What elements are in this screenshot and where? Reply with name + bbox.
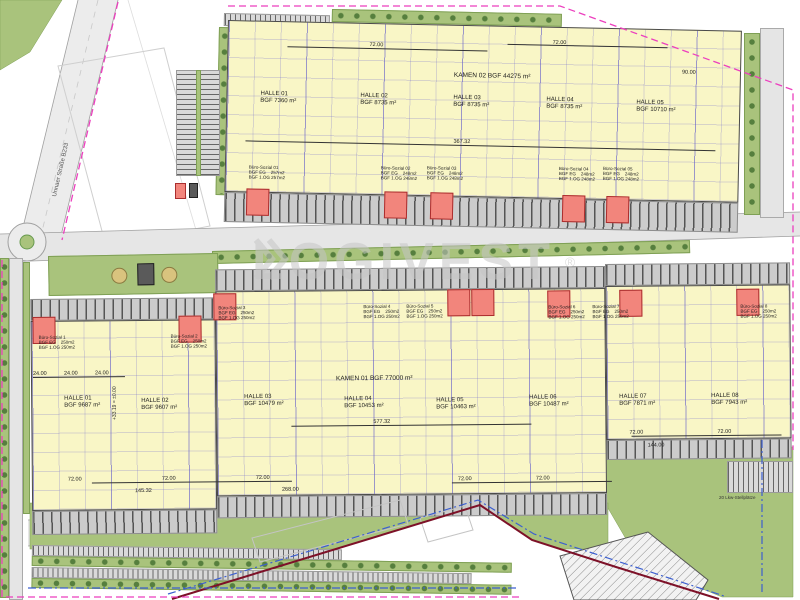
kamen01-hall-label-8: HALLE 08BGF 7943 m² — [711, 393, 747, 407]
utility-building — [189, 183, 198, 198]
kamen02-dimension-1: 72.00 — [369, 42, 383, 48]
kamen01-hall-label-5: HALLE 05BGF 10463 m² — [436, 397, 475, 411]
west-road — [9, 258, 23, 600]
kamen01-hall-label-2: HALLE 02BGF 9607 m² — [141, 398, 177, 412]
annotation-1: Unnaer Straße B233 — [52, 142, 70, 197]
kamen01-office-label-2: Büro-Sozial 2BGF EG 250m2BGF 1.OG 250m2 — [171, 333, 207, 348]
kamen01-office-label-7: Büro-Sozial 7BGF EG 250m2BGF 1.OG 250m2 — [592, 304, 628, 319]
kamen01-dimension-13: 72.00 — [717, 429, 731, 435]
east-road — [760, 28, 784, 218]
kamen01-dimension-7: 72.00 — [256, 475, 270, 481]
site-plan: KAMEN 02 BGF 44275 m²HALLE 01BGF 7360 m²… — [0, 0, 800, 600]
kamen01-dimension-5: 72.00 — [68, 477, 82, 483]
road-b233 — [18, 0, 118, 248]
kamen01-dimension-4: 577.32 — [373, 419, 390, 425]
kamen01-office-box-5 — [471, 289, 494, 316]
annotation-2: 20 Lkw-Stellplätze — [719, 495, 756, 500]
kamen02-hall-label-3: HALLE 03BGF 8735 m² — [453, 95, 489, 110]
kamen01-hall-label-6: HALLE 06BGF 10487 m² — [529, 394, 568, 408]
kamen02-office-box-5 — [606, 196, 630, 223]
kamen01-hall-label-4: HALLE 04BGF 10453 m² — [344, 396, 383, 410]
kamen02-hall-label-2: HALLE 02BGF 8735 m² — [360, 93, 396, 108]
kamen01-hall-label-1: HALLE 01BGF 9687 m² — [64, 395, 100, 409]
green-corner — [0, 0, 62, 70]
kamen02-office-label-5: Büro-Sozial 05BGF EG 248m2BGF 1.OG 248m2 — [603, 166, 640, 182]
tree-col-east — [744, 33, 760, 215]
kamen01-title: KAMEN 01 BGF 77000 m² — [336, 375, 413, 383]
kamen01-dimension-6: 72.00 — [162, 476, 176, 482]
kamen02-hall-label-1: HALLE 01BGF 7360 m² — [260, 91, 296, 106]
kamen01-dimension-11: 72.00 — [536, 475, 550, 481]
kamen01-office-label-5: Büro-Sozial 5BGF EG 250m2BGF 1.OG 250m2 — [406, 303, 442, 318]
kamen01-building: KAMEN 01 BGF 77000 m²HALLE 01BGF 9687 m²… — [30, 258, 793, 555]
parking-west-median — [196, 70, 201, 176]
kamen01-office-label-3: Büro-Sozial 3BGF EG 250m2BGF 1.OG 250m2 — [218, 305, 254, 320]
parcel-boundary — [62, 2, 118, 240]
annotation-3: +33.19 = ±0.00 — [112, 386, 118, 420]
kamen01-dimension-10: 72.00 — [458, 476, 472, 482]
kamen01-dimension-1: 24.00 — [33, 371, 47, 377]
tree-col-far-west — [0, 258, 9, 598]
kamen01-dimension-12: 72.00 — [629, 430, 643, 436]
kamen01-hall-label-3: HALLE 03BGF 10479 m² — [244, 394, 283, 408]
road-centerline — [38, 0, 98, 248]
kamen02-office-box-4 — [562, 195, 586, 222]
kamen02-office-box-3 — [430, 192, 454, 219]
kamen01-dimension-3: 24.00 — [95, 370, 109, 376]
roundabout-island — [20, 235, 34, 249]
kamen01-dimension-14: 144.00 — [648, 442, 665, 448]
roundabout — [8, 223, 46, 261]
kamen01-office-label-8: Büro-Sozial 8BGF EG 250m2BGF 1.OG 250m2 — [740, 303, 776, 318]
kamen02-dimension-2: 72.00 — [553, 40, 567, 46]
kamen01-office-label-1: Büro-Sozial 1BGF EG 250m2BGF 1.OG 250m2 — [39, 335, 75, 350]
green-col-west — [23, 262, 30, 514]
kamen01-hall-label-7: HALLE 07BGF 7871 m² — [619, 394, 655, 408]
kamen02-office-box-1 — [246, 188, 270, 215]
kamen01-office-label-6: Büro-Sozial 6BGF EG 250m2BGF 1.OG 250m2 — [548, 304, 584, 319]
kamen01-dimension-8: 145.32 — [135, 488, 152, 494]
kamen02-hall-label-5: HALLE 05BGF 10710 m² — [636, 100, 676, 115]
kamen01-dimension-2: 24.00 — [64, 371, 78, 377]
kamen01-office-box-4 — [447, 289, 470, 316]
kamen01-dock-apron — [217, 493, 607, 518]
kamen01-dock-apron — [605, 262, 790, 286]
kamen02-office-label-4: Büro-Sozial 04BGF EG 248m2BGF 1.OG 248m2 — [559, 166, 596, 182]
kamen02-office-label-2: Büro-Sozial 02BGF EG 248m2BGF 1.OG 248m2 — [381, 165, 418, 181]
kamen01-dimension-9: 268.00 — [282, 487, 299, 493]
sprinkler-building — [175, 183, 186, 199]
kamen02-hall-label-4: HALLE 04BGF 8735 m² — [546, 97, 582, 112]
kamen02-dimension-3: 90.00 — [682, 70, 696, 76]
kamen02-office-box-2 — [384, 191, 408, 218]
kamen02-office-label-3: Büro-Sozial 03BGF EG 248m2BGF 1.OG 248m2 — [427, 165, 464, 181]
kamen01-office-label-4: Büro-Sozial 4BGF EG 250m2BGF 1.OG 250m2 — [363, 304, 399, 319]
kamen02-building: KAMEN 02 BGF 44275 m²HALLE 01BGF 7360 m²… — [223, 20, 741, 246]
kamen02-dimension-4: 367.32 — [453, 139, 470, 145]
kamen01-dock-apron — [32, 509, 217, 535]
kamen02-office-label-1: Büro-Sozial 01BGF EG 257m2BGF 1.OG 257m2 — [249, 164, 286, 180]
kamen01-dock-apron — [607, 438, 792, 460]
